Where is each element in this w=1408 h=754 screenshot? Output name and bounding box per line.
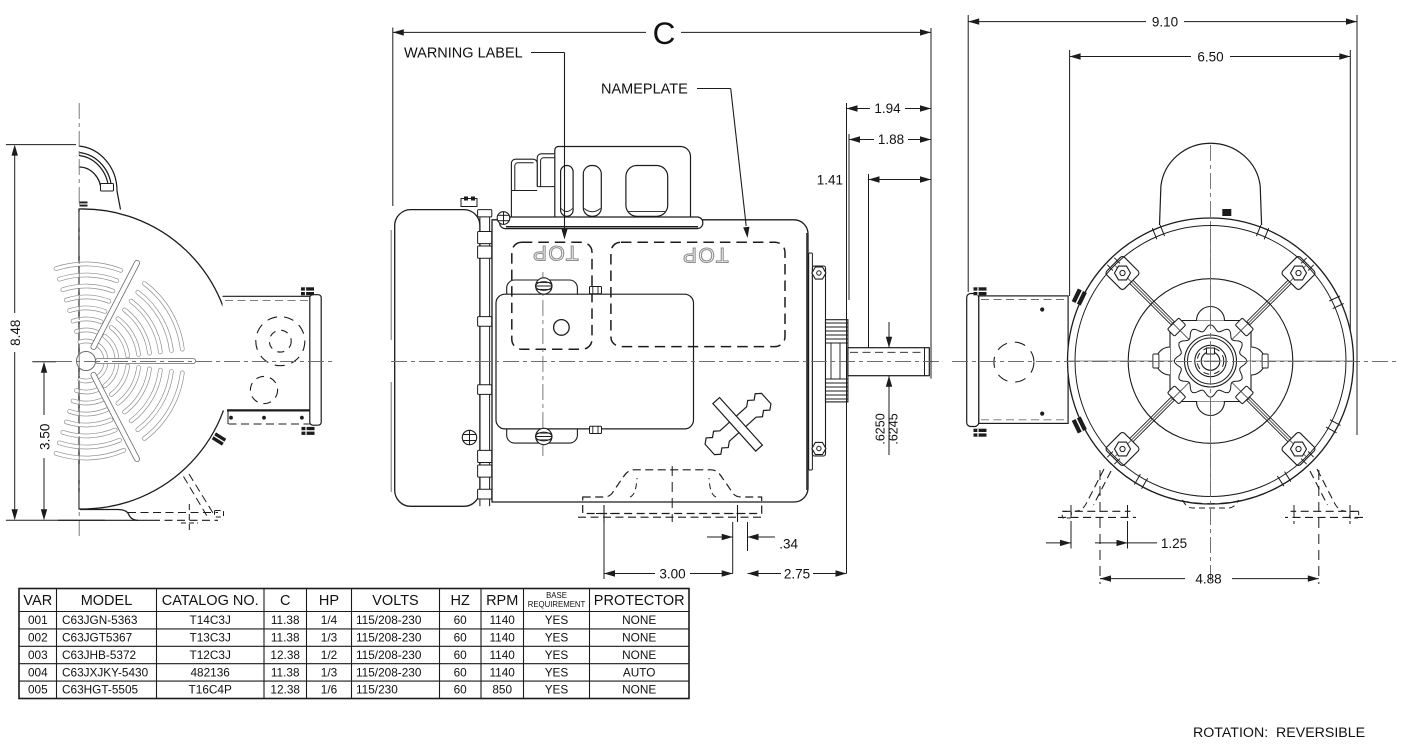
svg-text:1.88: 1.88 <box>878 132 904 147</box>
svg-text:001: 001 <box>28 613 48 627</box>
svg-text:6.50: 6.50 <box>1197 49 1223 64</box>
svg-text:NONE: NONE <box>622 648 656 662</box>
svg-text:T14C3J: T14C3J <box>190 613 231 627</box>
svg-text:8.48: 8.48 <box>8 320 23 346</box>
svg-text:C63JGT5367: C63JGT5367 <box>62 631 132 645</box>
svg-text:MODEL: MODEL <box>81 593 133 609</box>
svg-text:TOP: TOP <box>681 243 728 266</box>
svg-text:BASE: BASE <box>546 591 567 600</box>
svg-text:3.00: 3.00 <box>659 567 685 582</box>
svg-text:.34: .34 <box>779 537 798 552</box>
svg-text:1.41: 1.41 <box>817 173 843 188</box>
svg-text:1/4: 1/4 <box>321 613 338 627</box>
svg-text:11.38: 11.38 <box>271 613 300 627</box>
svg-text:115/208-230: 115/208-230 <box>356 613 422 627</box>
svg-text:1/3: 1/3 <box>321 631 338 645</box>
svg-text:VOLTS: VOLTS <box>372 593 418 609</box>
svg-text:T12C3J: T12C3J <box>190 648 231 662</box>
svg-text:YES: YES <box>545 683 569 697</box>
svg-text:9.10: 9.10 <box>1152 14 1178 29</box>
svg-text:NONE: NONE <box>622 631 656 645</box>
svg-text:60: 60 <box>454 613 468 627</box>
svg-text:1.25: 1.25 <box>1161 536 1187 551</box>
svg-text:482136: 482136 <box>191 665 231 679</box>
svg-text:1/3: 1/3 <box>321 665 338 679</box>
svg-text:HZ: HZ <box>451 593 470 609</box>
svg-text:AUTO: AUTO <box>623 665 656 679</box>
svg-text:1140: 1140 <box>490 648 516 662</box>
svg-text:YES: YES <box>545 648 569 662</box>
svg-text:115/208-230: 115/208-230 <box>356 665 422 679</box>
svg-text:ROTATION: REVERSIBLE: ROTATION: REVERSIBLE <box>1193 725 1365 741</box>
svg-text:PROTECTOR: PROTECTOR <box>594 593 685 609</box>
svg-text:YES: YES <box>545 665 569 679</box>
svg-text:115/208-230: 115/208-230 <box>356 631 422 645</box>
svg-text:.6250: .6250 <box>874 413 888 444</box>
svg-text:850: 850 <box>492 683 512 697</box>
svg-text:NONE: NONE <box>622 613 656 627</box>
svg-text:YES: YES <box>545 631 569 645</box>
svg-text:T13C3J: T13C3J <box>190 631 231 645</box>
svg-text:.6245: .6245 <box>887 413 901 444</box>
svg-text:TOP: TOP <box>531 241 578 264</box>
svg-text:1140: 1140 <box>490 665 516 679</box>
svg-text:115/230: 115/230 <box>356 683 398 697</box>
svg-text:C63HGT-5505: C63HGT-5505 <box>62 683 139 697</box>
svg-text:C63JHB-5372: C63JHB-5372 <box>62 648 136 662</box>
svg-text:T16C4P: T16C4P <box>189 683 232 697</box>
svg-text:60: 60 <box>454 648 468 662</box>
svg-text:1140: 1140 <box>490 613 516 627</box>
svg-text:WARNING LABEL: WARNING LABEL <box>404 46 523 62</box>
svg-text:003: 003 <box>28 648 48 662</box>
svg-text:12.38: 12.38 <box>270 683 300 697</box>
svg-text:1/6: 1/6 <box>321 683 338 697</box>
svg-text:C63JGN-5363: C63JGN-5363 <box>62 613 138 627</box>
svg-text:HP: HP <box>319 593 339 609</box>
svg-text:C: C <box>280 593 290 609</box>
svg-text:3.50: 3.50 <box>38 424 53 450</box>
svg-text:1140: 1140 <box>490 631 516 645</box>
svg-text:VAR: VAR <box>23 593 52 609</box>
svg-text:11.38: 11.38 <box>271 665 300 679</box>
svg-text:002: 002 <box>28 631 48 645</box>
svg-text:C: C <box>653 15 676 51</box>
svg-text:1/2: 1/2 <box>321 648 337 662</box>
svg-text:12.38: 12.38 <box>270 648 300 662</box>
svg-text:004: 004 <box>28 665 48 679</box>
svg-text:1.94: 1.94 <box>874 101 901 116</box>
svg-text:115/208-230: 115/208-230 <box>356 648 422 662</box>
svg-text:11.38: 11.38 <box>271 631 300 645</box>
svg-text:005: 005 <box>28 683 48 697</box>
svg-text:C63JXJKY-5430: C63JXJKY-5430 <box>62 665 149 679</box>
svg-text:NAMEPLATE: NAMEPLATE <box>601 82 688 98</box>
svg-text:60: 60 <box>454 631 468 645</box>
svg-text:4.88: 4.88 <box>1195 571 1221 586</box>
svg-text:YES: YES <box>545 613 569 627</box>
svg-text:60: 60 <box>454 683 468 697</box>
svg-text:2.75: 2.75 <box>784 567 810 582</box>
svg-text:60: 60 <box>454 665 468 679</box>
svg-text:CATALOG NO.: CATALOG NO. <box>162 593 259 609</box>
svg-text:NONE: NONE <box>622 683 656 697</box>
svg-text:REQUIREMENT: REQUIREMENT <box>528 600 586 609</box>
svg-text:RPM: RPM <box>486 593 518 609</box>
